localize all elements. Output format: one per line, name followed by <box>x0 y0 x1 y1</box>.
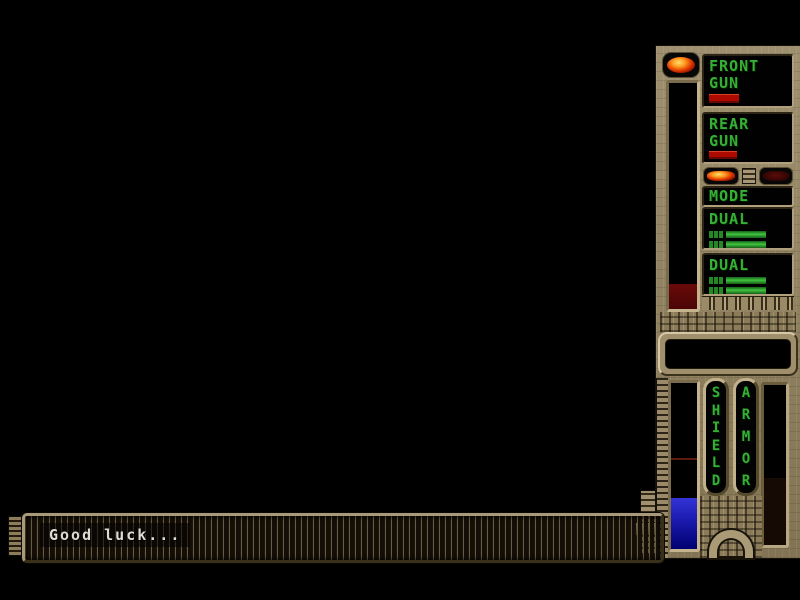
rear-gun-ammo-bar <box>709 151 737 159</box>
dual-secondary-bar-1 <box>709 277 792 284</box>
weapon-indicator-right <box>759 167 793 185</box>
dual-primary-label: DUAL <box>709 211 792 228</box>
mode-label: MODE <box>709 188 792 205</box>
rear-gun-panel: REAR GUN <box>702 112 794 164</box>
panel-tabs <box>702 296 794 310</box>
dual-primary-panel: DUAL <box>702 207 794 250</box>
armor-label: ARMOR <box>736 381 756 493</box>
shield-label-column: SHIELD <box>703 378 729 496</box>
dual-primary-bar-1 <box>709 231 792 238</box>
score-window <box>658 332 798 376</box>
mode-panel: MODE <box>702 186 794 207</box>
shield-threshold-line <box>671 458 697 460</box>
message-bar: Good luck... <box>8 513 658 557</box>
shield-gauge-fill <box>671 498 697 549</box>
bottom-circuit-block <box>700 496 762 558</box>
hud-sidebar: FRONT GUN REAR GUN MODE DUAL <box>656 46 800 558</box>
armor-gauge-shade <box>764 478 786 545</box>
indicator-connector <box>742 168 756 184</box>
shield-label: SHIELD <box>706 381 726 493</box>
weapon-indicator-lit-icon <box>707 171 735 181</box>
dual-secondary-bar-2 <box>709 287 792 294</box>
energy-gauge <box>666 80 700 312</box>
power-light <box>662 52 700 78</box>
front-gun-label-line1: FRONT <box>709 58 792 75</box>
landing-arch-icon <box>709 530 753 558</box>
rear-gun-label-line1: REAR <box>709 116 792 133</box>
dual-secondary-label: DUAL <box>709 257 792 274</box>
armor-label-column: ARMOR <box>733 378 759 496</box>
rear-gun-label-line2: GUN <box>709 133 792 150</box>
game-field: FRONT GUN REAR GUN MODE DUAL <box>0 0 800 600</box>
front-gun-ammo-bar <box>709 94 739 103</box>
weapon-indicator-row <box>702 166 794 186</box>
score-window-display <box>665 339 791 369</box>
message-text: Good luck... <box>40 523 190 547</box>
weapon-indicator-left <box>703 167 739 185</box>
weapon-indicator-dim-icon <box>763 171 789 181</box>
dual-secondary-panel: DUAL <box>702 253 794 296</box>
power-light-lit-icon <box>667 57 695 73</box>
front-gun-label-line2: GUN <box>709 75 792 92</box>
front-gun-panel: FRONT GUN <box>702 54 794 108</box>
shield-gauge <box>668 380 700 552</box>
armor-gauge <box>761 382 789 548</box>
dual-primary-bar-2 <box>709 241 792 248</box>
energy-gauge-fill <box>669 284 697 309</box>
circuit-strip <box>660 312 796 332</box>
